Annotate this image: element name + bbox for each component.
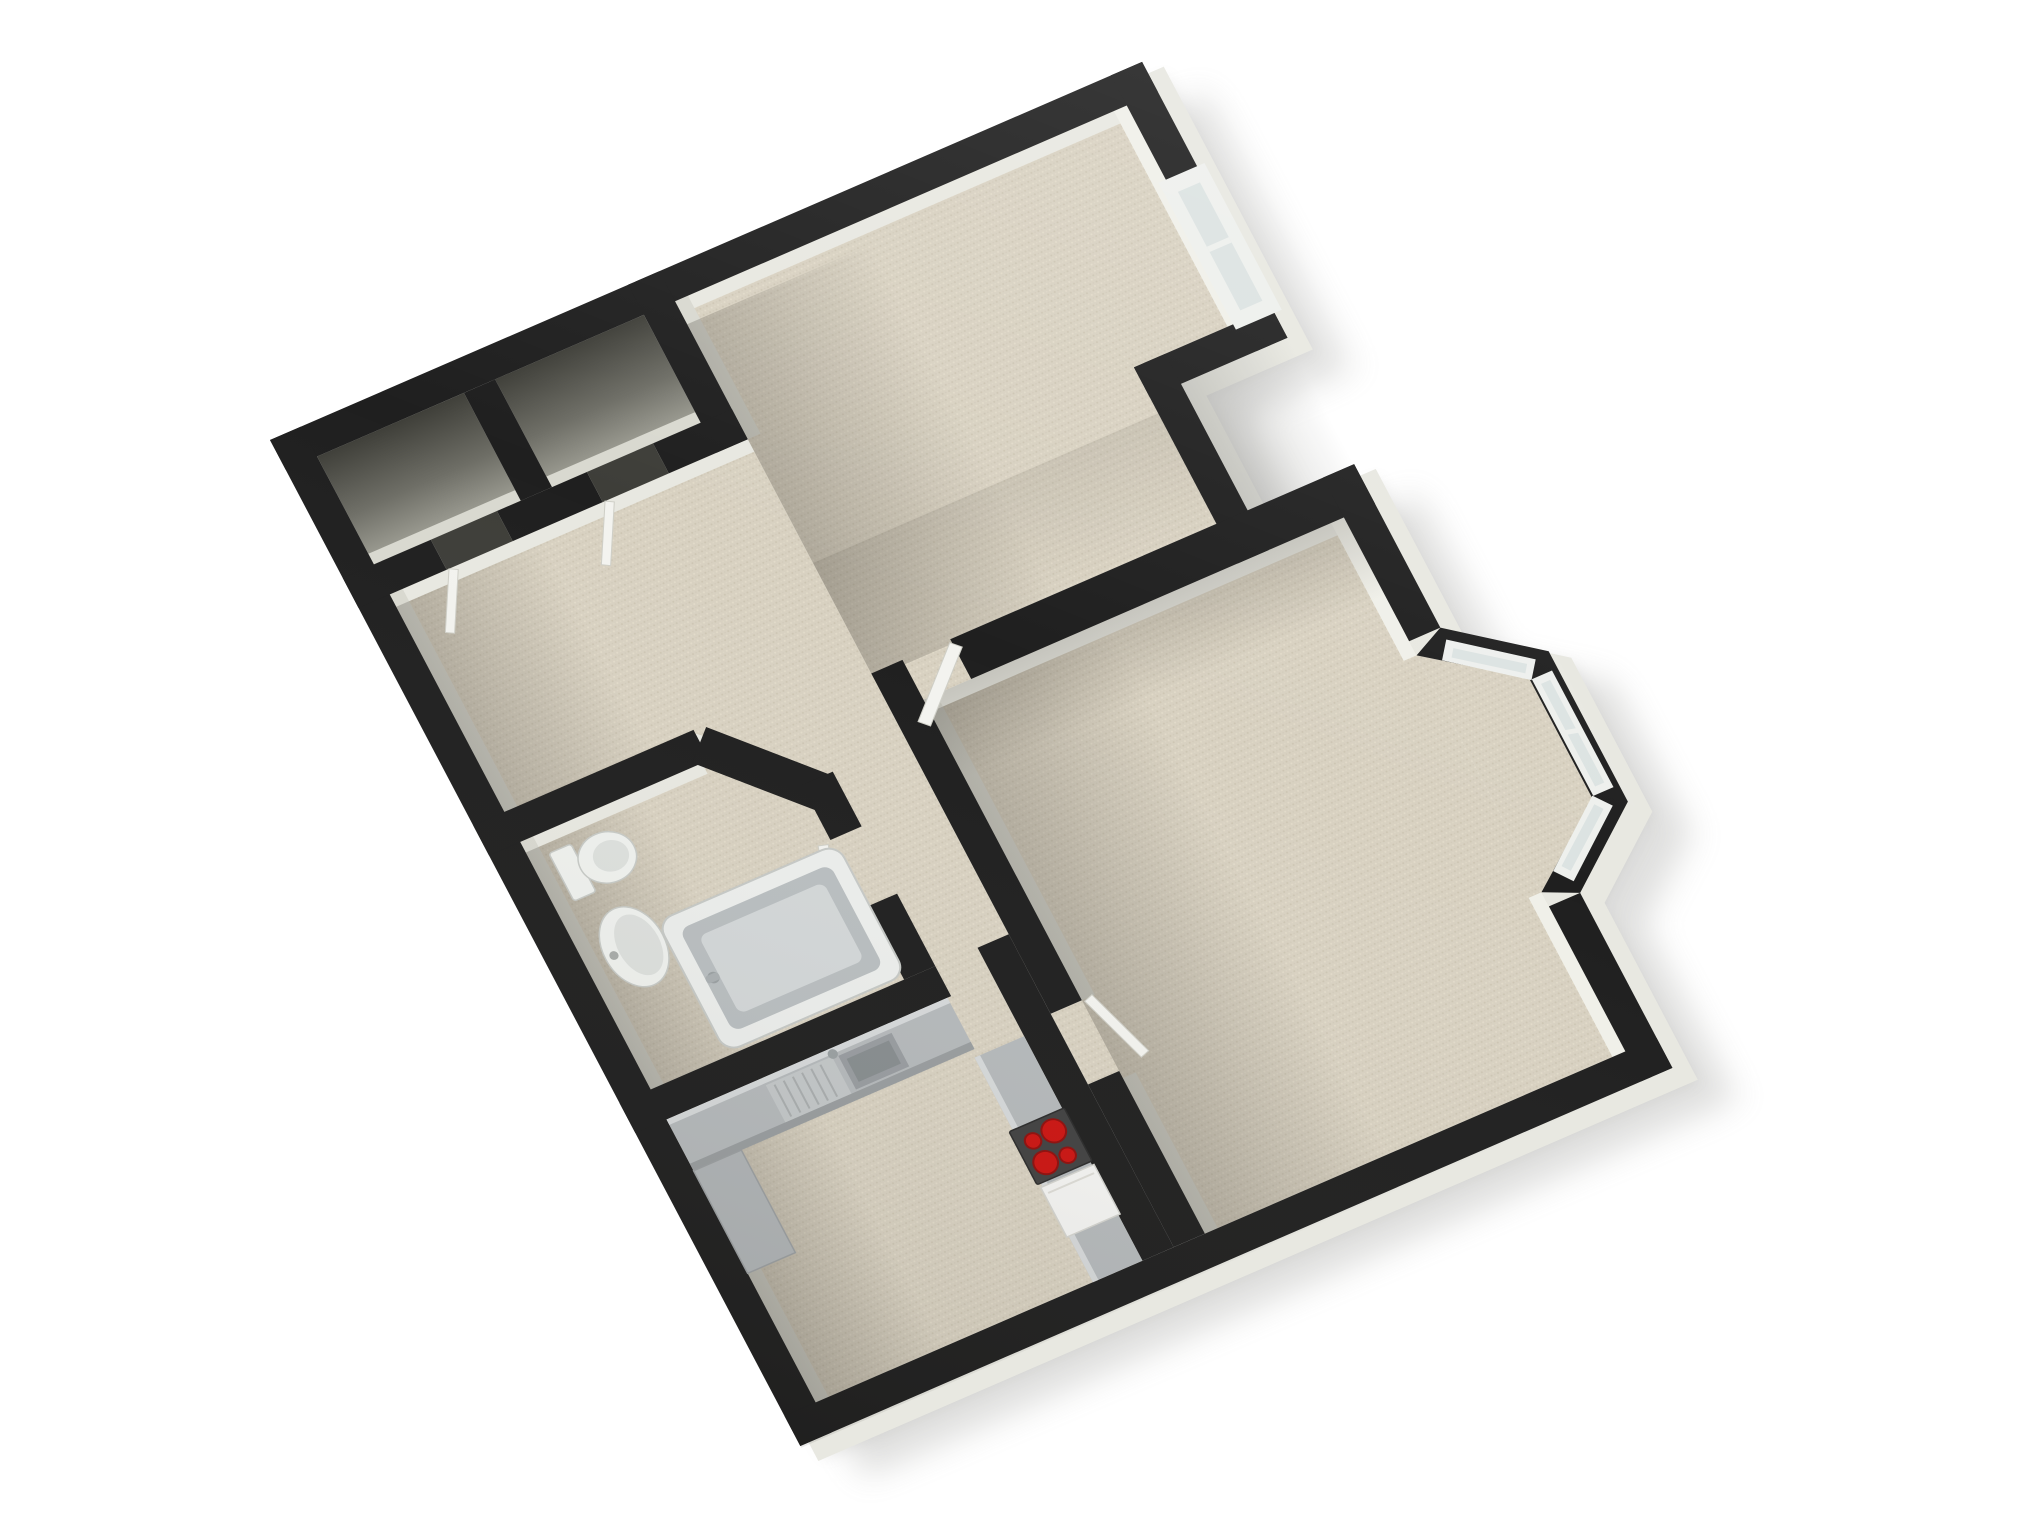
floor-plan-group (270, 11, 1814, 1493)
floor-plan-screenshot (0, 0, 2025, 1519)
floor-plan-svg (0, 0, 2025, 1519)
lighting-overlay (270, 26, 1756, 1448)
